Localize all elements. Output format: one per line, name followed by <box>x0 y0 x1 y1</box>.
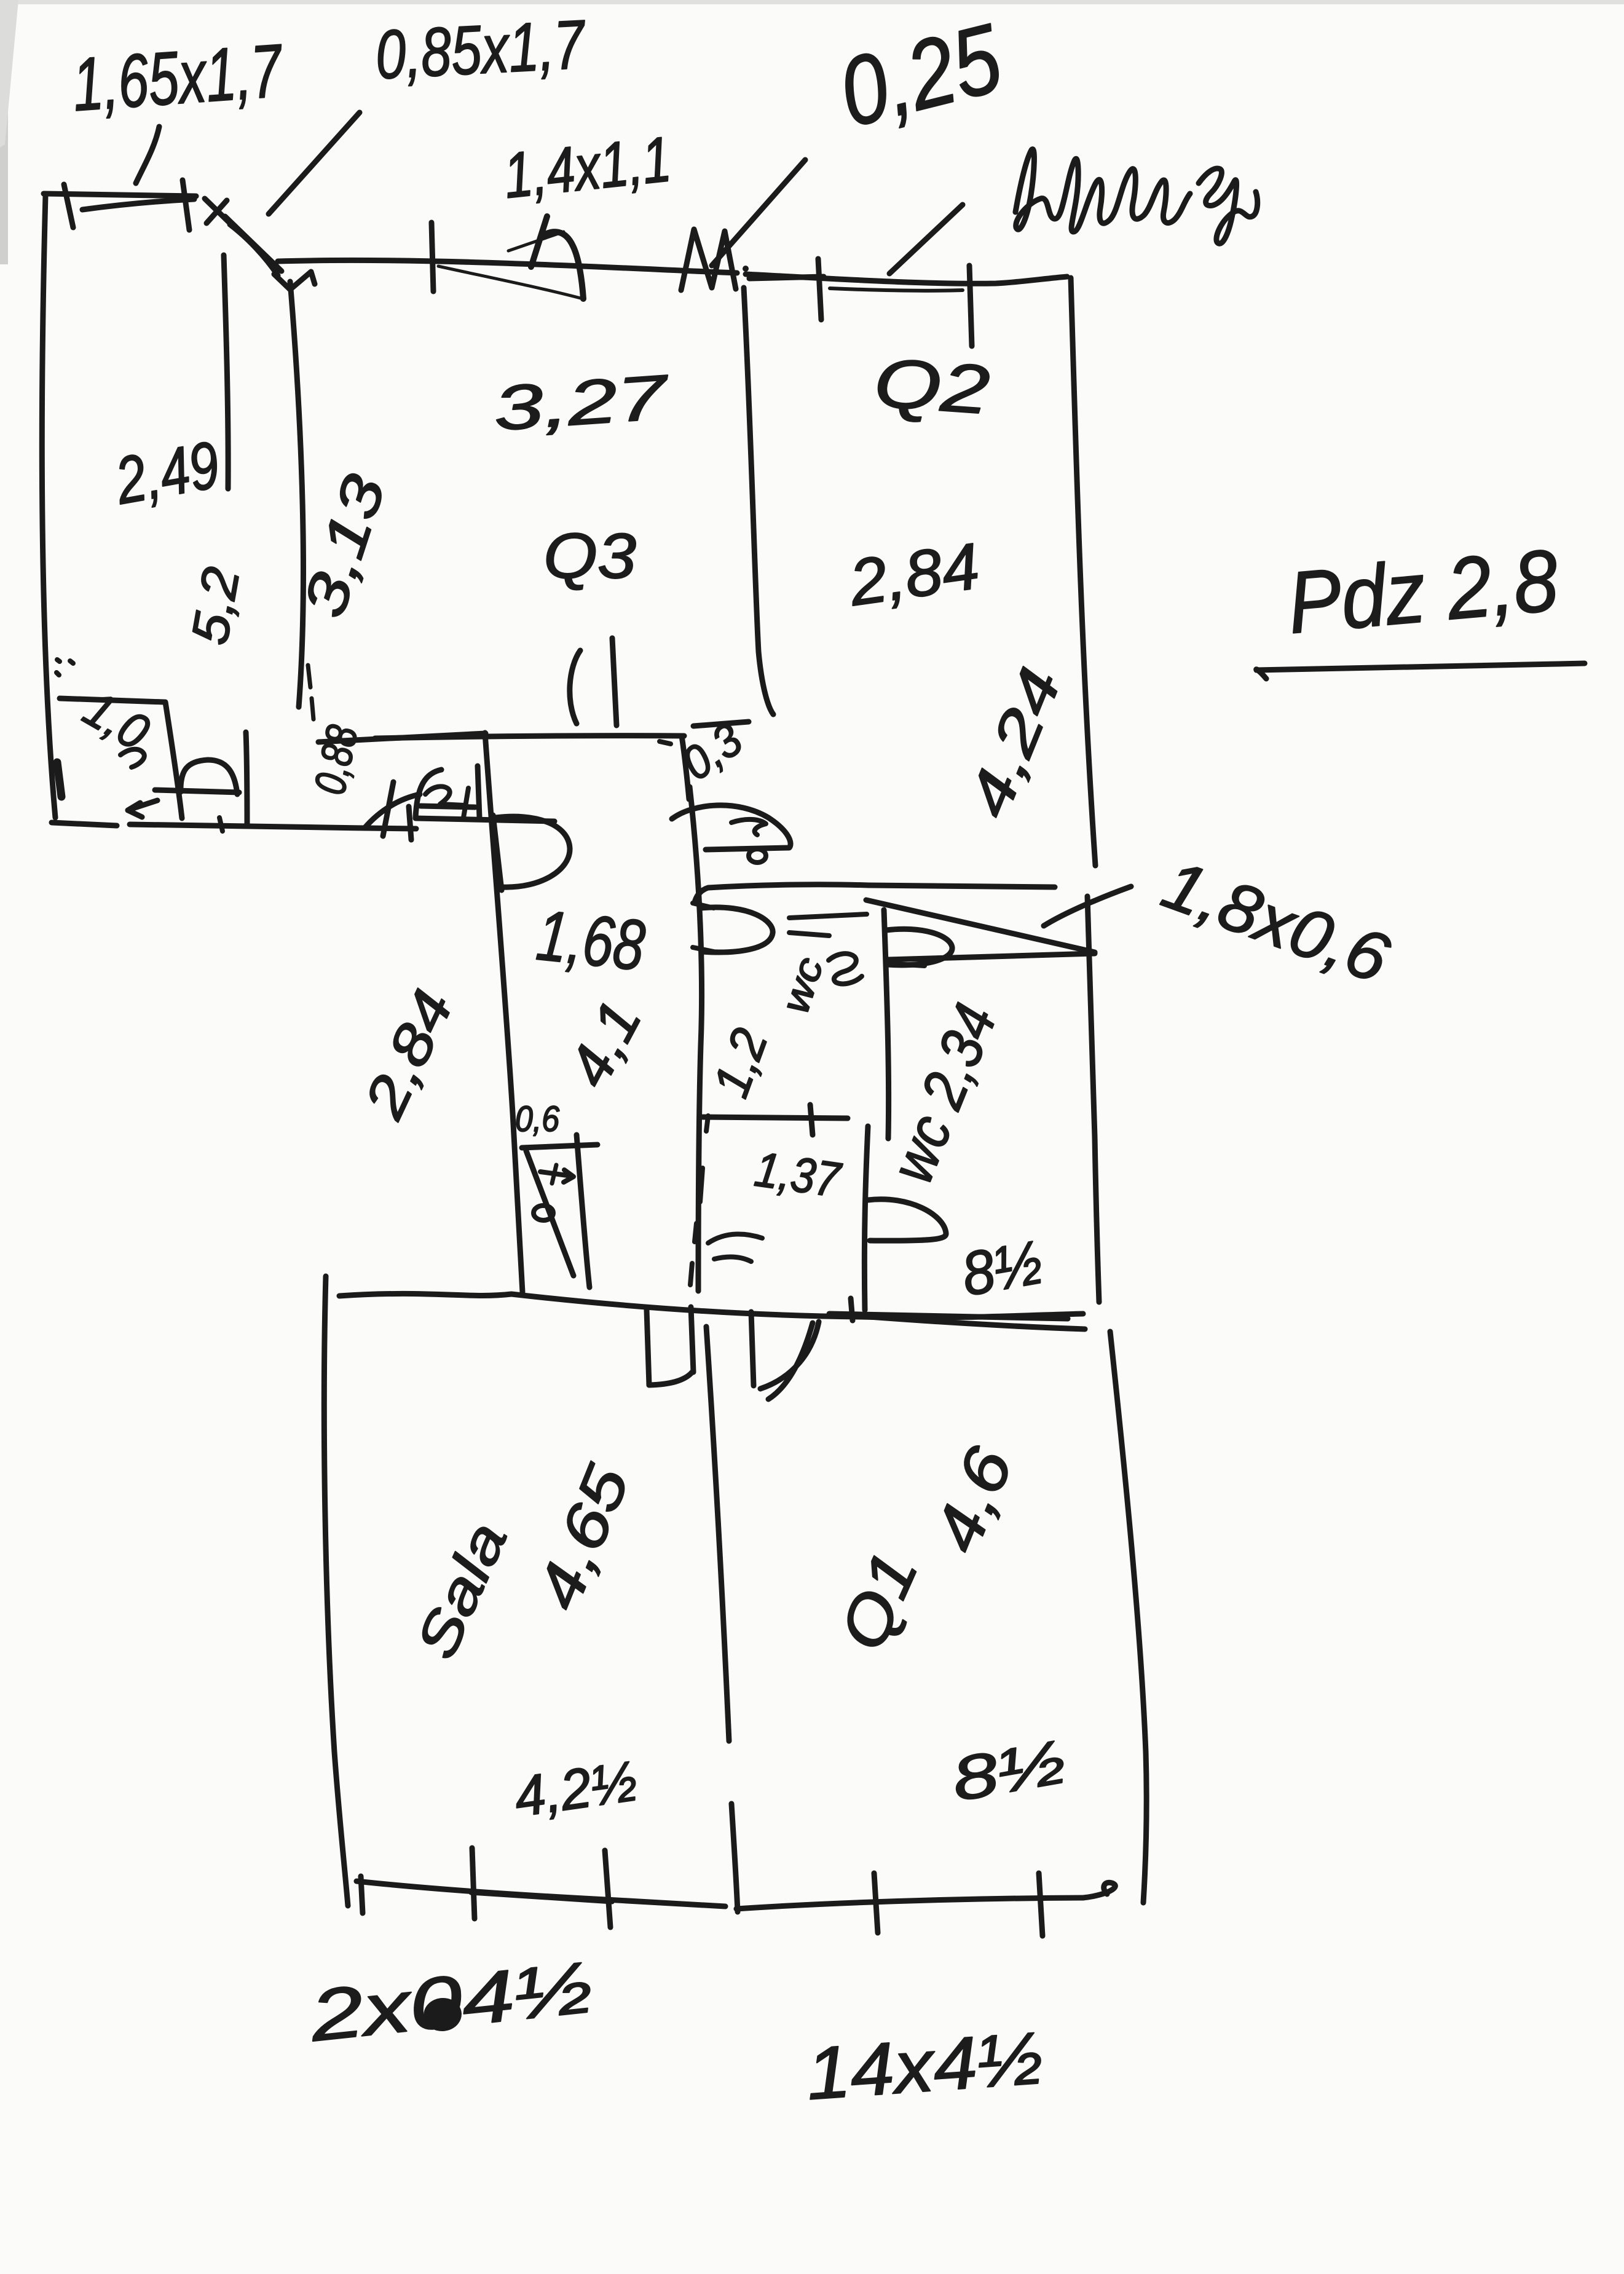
svg-text:0,6: 0,6 <box>515 1099 560 1139</box>
svg-text:3,27: 3,27 <box>492 361 672 444</box>
svg-text:8½: 8½ <box>956 1228 1047 1309</box>
svg-text:Q2: Q2 <box>872 344 991 428</box>
svg-text:1,68: 1,68 <box>533 895 648 986</box>
svg-text:0,85x1,7: 0,85x1,7 <box>374 6 588 93</box>
svg-text:1,65x1,7: 1,65x1,7 <box>70 28 286 127</box>
svg-text:Q3: Q3 <box>543 521 636 592</box>
svg-text:14x4½: 14x4½ <box>803 2016 1045 2115</box>
